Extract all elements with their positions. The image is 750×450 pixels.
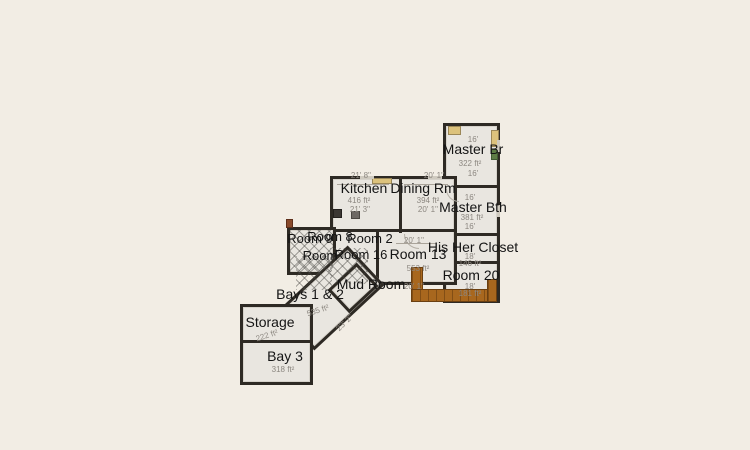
room-label-master-br: Master Br [443, 142, 504, 156]
room-label-bay3: Bay 3 [267, 349, 303, 363]
small-cabinet[interactable] [286, 219, 293, 228]
room-label-kitchen: Kitchen [341, 181, 388, 195]
closet-fixture[interactable] [448, 126, 461, 135]
room-label-room8: Room 8 [307, 230, 353, 243]
room-label-room20: Room 20 [443, 268, 500, 282]
area-bay3: 318 ft² [272, 366, 295, 374]
area-dining: 394 ft² [417, 197, 440, 205]
area-room20: 181 ft² [459, 290, 482, 298]
dim-dining-bottom: 20' 1'' [418, 206, 438, 214]
room-label-master-bth: Master Bth [439, 200, 507, 214]
dim-masterbr-bottom: 16' [468, 170, 478, 178]
area-masterbr: 322 ft² [459, 160, 482, 168]
room-label-storage: Storage [245, 315, 294, 329]
area-room13: 553 ft² [407, 265, 430, 273]
room-label-bays12: Bays 1 & 2 [276, 287, 344, 301]
room-label-room-plain: Room [303, 249, 338, 262]
kitchen-appliance[interactable] [333, 209, 342, 218]
wall-storage-bay3 [240, 340, 313, 343]
room-label-his-her-closet: His Her Closet [428, 240, 518, 254]
area-masterbth: 381 ft² [461, 214, 484, 222]
room-label-room16: Room 16 [335, 248, 388, 261]
dim-dining-top: 20' 1'' [424, 172, 444, 180]
dim-kitchen-bottom: 21' 3'' [350, 206, 370, 214]
dim-room13-bottom: 20' 1'' [404, 283, 424, 291]
room-label-mud-room: Mud Room [337, 277, 405, 291]
dim-kitchen-top: 21' 8'' [351, 172, 371, 180]
area-kitchen: 416 ft² [348, 197, 371, 205]
dim-masterbth-bottom: 16' [465, 223, 475, 231]
room-label-dining: Dining Rm [390, 181, 455, 195]
floor-plan-canvas[interactable]: 16' 322 ft² 16' 16' 381 ft² 16' 21' 8'' … [0, 0, 750, 450]
room-label-room2: Room 2 [347, 232, 393, 245]
dim-room13-top: 20' 1'' [404, 237, 424, 245]
